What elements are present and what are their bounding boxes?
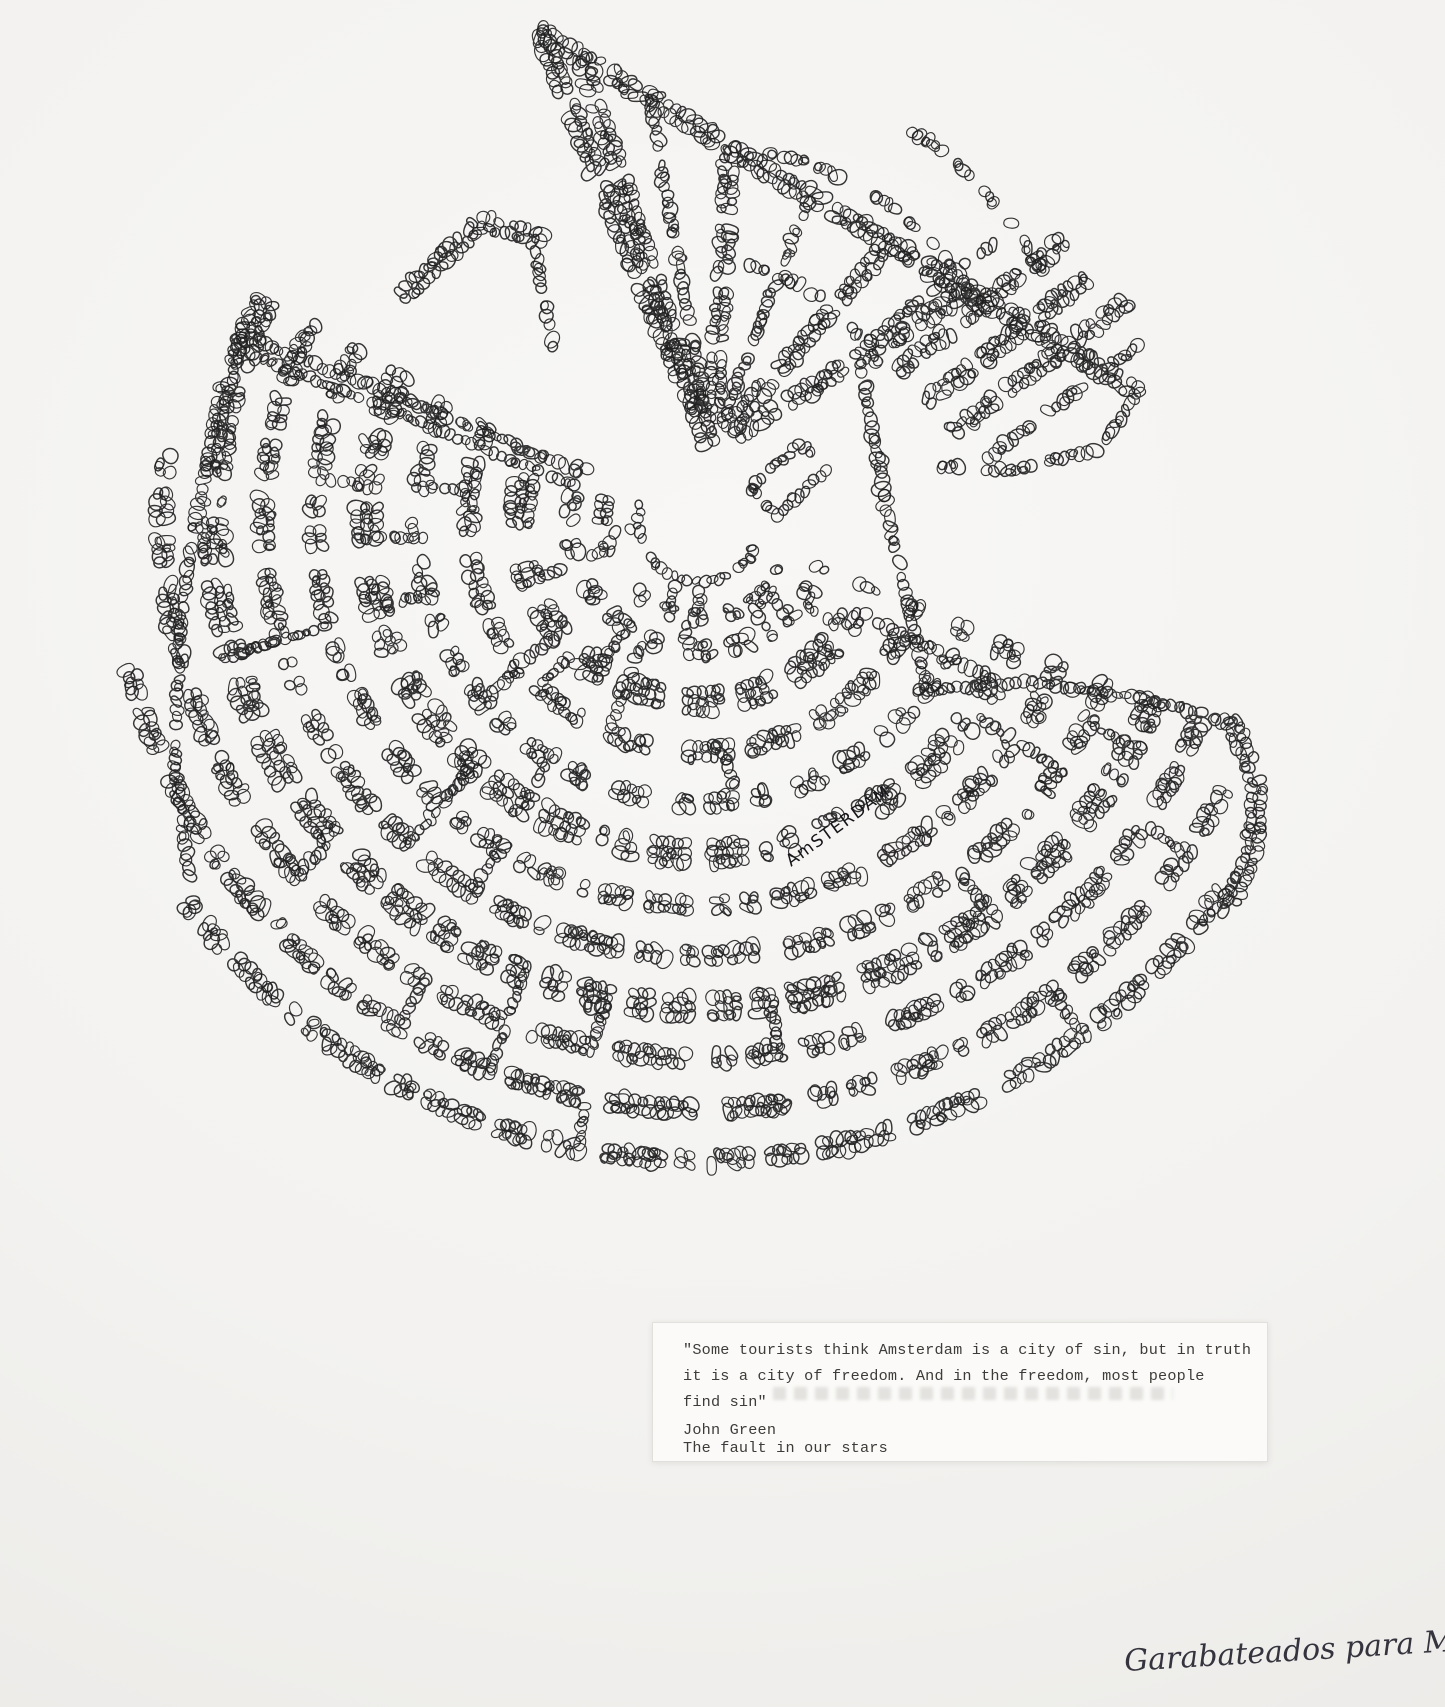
quote-attribution-name: John Green — [683, 1422, 1243, 1440]
quote-line-1: "Some tourists think Amsterdam is a city… — [683, 1337, 1243, 1363]
quote-line-3: find sin" — [683, 1389, 1243, 1415]
scribble-ink-layer — [124, 25, 1267, 1171]
quote-line-2: it is a city of freedom. And in the free… — [683, 1363, 1243, 1389]
quote-attribution-work: The fault in our stars — [683, 1440, 1243, 1458]
quote-card: "Some tourists think Amsterdam is a city… — [652, 1322, 1268, 1462]
artwork-photo: AmSTERDAM "Some tourists think Amsterdam… — [0, 0, 1445, 1707]
